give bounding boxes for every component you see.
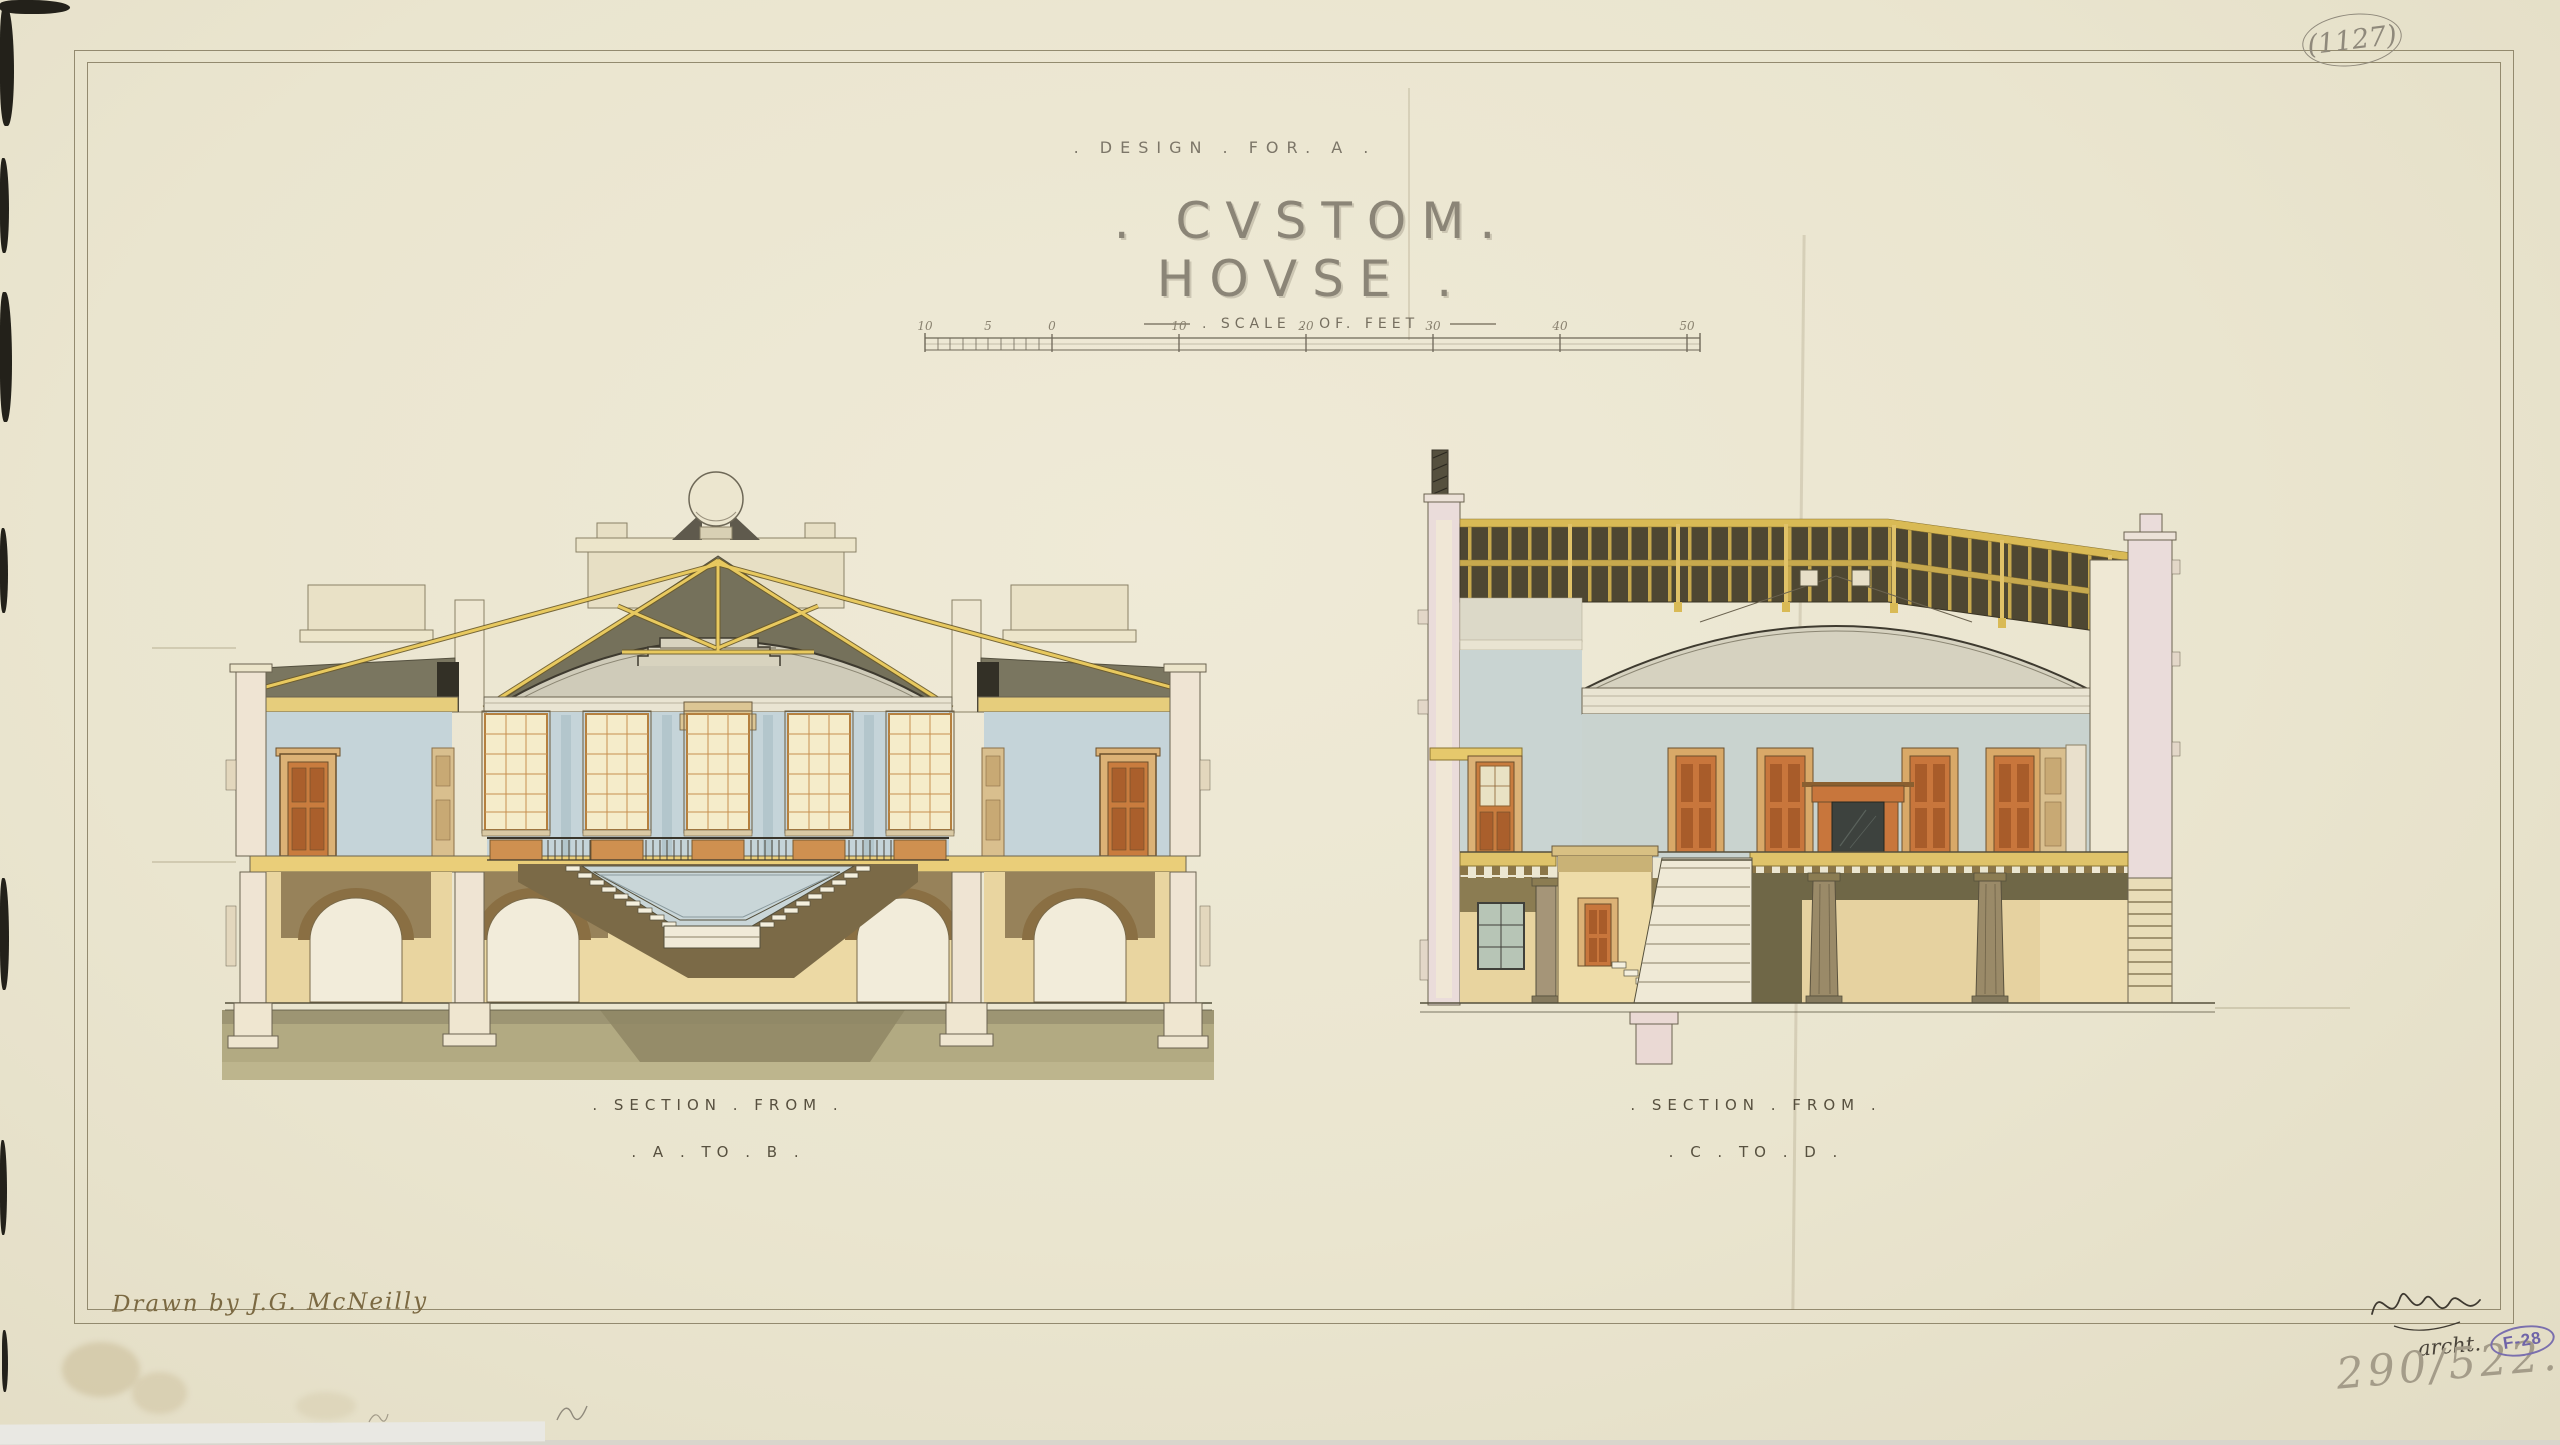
drawing-title: . CVSTOM. HOVSE . [1062,192,1562,308]
basement-door [1578,898,1618,966]
wing-door-right [1096,748,1160,856]
hall-interior [482,702,954,858]
pencil-squiggle [552,1396,592,1426]
scan-edge-mark [0,878,9,990]
drawing-sheet: . DESIGN . FOR. A . . CVSTOM. HOVSE . . … [0,0,2560,1440]
archive-number: (1127) [2306,19,2399,61]
scan-edge-mark [0,528,8,613]
scale-bar-rule [925,333,1700,352]
wing-door-left [276,748,340,856]
scan-edge-mark [0,6,14,126]
banded-quoin-pier [2128,878,2172,1003]
right-wall-cut [2090,514,2180,878]
paper-bottom-edge [0,1421,545,1444]
scan-edge-mark [0,158,9,253]
section-cd-drawing [1400,430,2360,1110]
scale-tick-label: 50 [1679,319,1694,333]
scale-tick-label: 30 [1425,319,1440,333]
section-cd-caption-line1: . SECTION . FROM . [1576,1096,1936,1114]
base-lines [1420,1003,2350,1064]
scan-edge-mark [0,292,12,422]
scan-edge-mark [0,1140,7,1235]
scale-bar [920,315,1720,360]
basement-window [1478,903,1524,969]
section-ab-drawing [150,440,1290,1100]
section-ab-caption-line2: . A . TO . B . [538,1143,898,1161]
section-cd-caption-line2: . C . TO . D . [1576,1143,1936,1161]
paper-stain [132,1372,187,1414]
pencil-squiggle [366,1408,390,1426]
glazed-door [1468,756,1522,856]
basement-columns-hall [1752,873,2172,1003]
scale-tick-label: 0 [1048,319,1056,333]
scale-tick-label: 5 [984,319,992,333]
small-column [1532,878,1560,1003]
drawn-by-inscription: Drawn by J.G. McNeilly [112,1288,428,1317]
ground-wash [222,1003,1214,1080]
paper-stain [62,1342,140,1397]
drafting-guide-lines [152,648,236,862]
scale-tick-label: 10 [917,319,932,333]
section-ab-caption-line1: . SECTION . FROM . [538,1096,898,1114]
scale-tick-label: 10 [1171,319,1186,333]
drawing-subtitle: . DESIGN . FOR. A . [1030,138,1420,157]
fireplace [1802,782,1914,852]
scale-tick-label: 40 [1552,319,1567,333]
scan-edge-mark [2,1330,8,1392]
paper-stain [296,1392,356,1420]
scan-edge-mark [0,0,70,14]
scale-tick-label: 20 [1298,319,1313,333]
